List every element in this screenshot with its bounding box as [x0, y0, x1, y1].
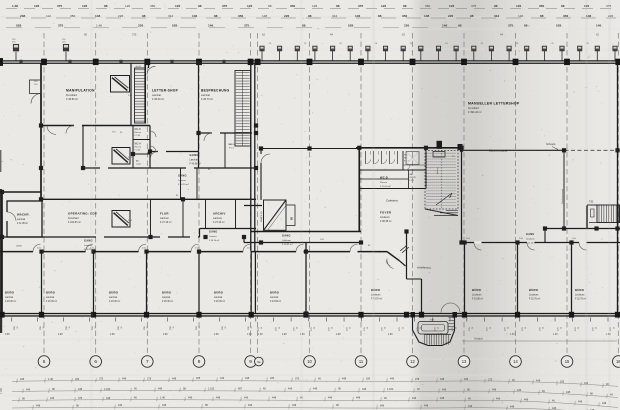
svg-text:448: 448 [36, 405, 41, 408]
svg-text:26: 26 [43, 326, 45, 328]
svg-text:Laminat: Laminat [109, 296, 118, 299]
svg-text:126: 126 [381, 4, 386, 8]
svg-text:446: 446 [578, 401, 583, 404]
svg-text:F 40.98 m²: F 40.98 m² [190, 163, 201, 166]
svg-text:Laminat: Laminat [178, 179, 186, 182]
svg-text:2.98: 2.98 [58, 334, 63, 336]
svg-text:446: 446 [50, 397, 55, 400]
svg-text:146: 146 [442, 24, 447, 28]
svg-text:F 222.84 m²: F 222.84 m² [68, 221, 81, 224]
svg-text:98: 98 [308, 14, 312, 18]
svg-text:185: 185 [270, 377, 275, 380]
svg-text:26: 26 [147, 326, 149, 328]
svg-text:26: 26 [507, 327, 509, 329]
svg-text:Laminat: Laminat [162, 296, 171, 299]
svg-text:2.98: 2.98 [110, 334, 115, 336]
svg-text:278: 278 [147, 377, 152, 380]
svg-text:MANUELLER LETTERSHOP: MANUELLER LETTERSHOP [468, 102, 520, 106]
svg-text:26: 26 [69, 326, 71, 328]
svg-text:26: 26 [332, 327, 334, 329]
svg-text:1.38: 1.38 [247, 334, 252, 336]
svg-text:98: 98 [458, 24, 462, 28]
svg-text:F 26.30 m²: F 26.30 m² [5, 300, 16, 303]
svg-text:98: 98 [336, 4, 340, 8]
svg-text:448: 448 [313, 388, 318, 391]
svg-text:Laminat: Laminat [201, 94, 210, 97]
svg-text:26: 26 [349, 327, 351, 329]
svg-text:9: 9 [249, 359, 252, 364]
svg-text:448: 448 [492, 389, 497, 392]
svg-text:446: 446 [188, 396, 193, 399]
svg-text:375: 375 [222, 4, 227, 8]
svg-text:WC-H: WC-H [135, 144, 142, 146]
svg-text:BÜRO: BÜRO [270, 290, 280, 295]
svg-text:FLUR: FLUR [160, 212, 169, 216]
svg-text:126: 126 [516, 4, 521, 8]
svg-text:F 18.16 m²: F 18.16 m² [209, 239, 219, 242]
svg-text:226: 226 [284, 14, 289, 18]
svg-text:446: 446 [244, 396, 249, 399]
svg-text:448: 448 [172, 377, 177, 380]
svg-text:375: 375 [295, 377, 300, 380]
svg-text:88: 88 [524, 24, 528, 28]
svg-text:26: 26 [314, 327, 316, 329]
svg-text:2.98: 2.98 [336, 334, 341, 336]
svg-text:Linoleum: Linoleum [575, 295, 584, 297]
svg-text:126: 126 [312, 4, 317, 8]
svg-text:226: 226 [138, 24, 143, 28]
svg-text:F 27.16 m²: F 27.16 m² [160, 221, 172, 224]
svg-text:F 15.26 m²: F 15.26 m² [526, 242, 536, 245]
svg-text:528: 528 [556, 24, 561, 28]
svg-text:26: 26 [596, 327, 598, 329]
svg-text:Kunstharz: Kunstharz [66, 94, 78, 97]
svg-text:448: 448 [162, 404, 167, 407]
svg-text:180/80: 180/80 [16, 246, 22, 248]
svg-text:Fliesen: Fliesen [135, 132, 141, 134]
svg-text:375: 375 [132, 33, 137, 37]
svg-text:98: 98 [494, 4, 498, 8]
svg-text:1.182: 1.182 [1, 388, 3, 394]
svg-text:GANG: GANG [282, 233, 291, 237]
svg-text:375: 375 [58, 24, 63, 28]
svg-text:Laminat: Laminat [209, 235, 217, 238]
svg-text:BESPRECHUNG: BESPRECHUNG [201, 89, 230, 93]
svg-text:F 28.00 m²: F 28.00 m² [152, 98, 164, 101]
svg-text:Laminat: Laminat [160, 217, 169, 220]
svg-text:26: 26 [578, 327, 580, 329]
svg-text:BÜRO: BÜRO [5, 290, 15, 295]
svg-text:446: 446 [122, 378, 127, 381]
svg-text:448: 448 [566, 391, 571, 394]
svg-text:Laminat: Laminat [270, 296, 279, 299]
svg-text:Laminat: Laminat [213, 217, 222, 220]
svg-text:26: 26 [173, 326, 175, 328]
svg-text:BÜRO: BÜRO [162, 290, 172, 295]
svg-text:1.38: 1.38 [258, 334, 263, 336]
svg-text:1.38: 1.38 [510, 334, 515, 336]
svg-text:F 16.91 m²: F 16.91 m² [282, 243, 293, 246]
svg-text:98: 98 [403, 4, 407, 8]
svg-text:148: 148 [262, 14, 267, 18]
svg-text:350: 350 [425, 4, 430, 8]
svg-text:356: 356 [70, 14, 75, 18]
svg-text:PUTZR.: PUTZR. [410, 177, 417, 179]
svg-text:2.98: 2.98 [214, 334, 219, 336]
svg-text:26x18: 26x18 [136, 66, 141, 68]
svg-text:26: 26 [420, 327, 422, 329]
svg-text:Vordach: Vordach [474, 338, 483, 341]
svg-text:312: 312 [494, 14, 499, 18]
svg-text:375: 375 [471, 4, 476, 8]
svg-text:448: 448 [106, 397, 111, 400]
svg-text:Laminat: Laminat [190, 159, 199, 162]
svg-text:448: 448 [440, 378, 445, 381]
svg-text:26: 26 [17, 326, 19, 328]
svg-text:98: 98 [198, 4, 202, 8]
svg-text:GANG: GANG [209, 231, 218, 234]
svg-text:BÜRO: BÜRO [472, 287, 482, 292]
svg-text:487: 487 [238, 387, 243, 390]
svg-text:146: 146 [596, 24, 601, 28]
svg-text:F 26.30 m²: F 26.30 m² [214, 300, 225, 303]
svg-text:F 28.73 m²: F 28.73 m² [201, 98, 213, 101]
svg-text:1.48: 1.48 [96, 24, 102, 28]
svg-text:F 26.30 m²: F 26.30 m² [46, 300, 57, 303]
svg-text:446: 446 [390, 378, 395, 381]
svg-text:98: 98 [104, 4, 108, 8]
svg-text:Laminat: Laminat [5, 296, 14, 299]
svg-text:Linoleum: Linoleum [472, 295, 481, 297]
svg-text:BÜRO: BÜRO [46, 290, 56, 295]
svg-text:350: 350 [290, 4, 295, 8]
svg-text:14: 14 [513, 359, 518, 364]
svg-text:1.38: 1.38 [553, 334, 558, 336]
svg-text:6: 6 [94, 359, 97, 364]
svg-text:Lager: Lager [136, 164, 141, 166]
svg-text:448: 448 [524, 398, 529, 401]
svg-text:238: 238 [20, 14, 25, 18]
svg-text:12: 12 [410, 359, 415, 364]
svg-text:F 2.45: F 2.45 [135, 135, 142, 137]
svg-text:185: 185 [75, 378, 80, 381]
svg-text:Linoleum: Linoleum [282, 240, 291, 242]
svg-text:278: 278 [415, 378, 420, 381]
svg-text:185: 185 [464, 378, 469, 381]
svg-text:448: 448 [342, 377, 347, 380]
svg-text:446: 446 [517, 389, 522, 392]
svg-text:112: 112 [46, 14, 51, 18]
svg-text:126: 126 [449, 4, 454, 8]
svg-text:Glastrennwand: Glastrennwand [561, 189, 564, 204]
svg-text:F 98.38 m²: F 98.38 m² [380, 220, 392, 223]
svg-text:F 11.96 m²: F 11.96 m² [17, 222, 28, 225]
svg-text:98: 98 [268, 4, 272, 8]
svg-text:GANG: GANG [526, 233, 535, 236]
svg-text:Laminat: Laminat [17, 218, 26, 221]
svg-text:185: 185 [560, 381, 565, 384]
svg-text:Flie.: Flie. [404, 158, 408, 160]
svg-text:F 10.20 m²: F 10.20 m² [178, 183, 189, 186]
svg-text:F 33.08 m²: F 33.08 m² [472, 298, 483, 301]
svg-text:448: 448 [440, 397, 445, 400]
svg-text:F 23.09 m²: F 23.09 m² [270, 300, 281, 303]
svg-text:26: 26 [296, 327, 298, 329]
svg-text:448: 448 [424, 405, 429, 408]
svg-text:375: 375 [244, 24, 249, 28]
svg-text:88: 88 [214, 14, 218, 18]
svg-text:26: 26 [225, 326, 227, 328]
svg-text:448: 448 [510, 405, 515, 408]
svg-text:2.98: 2.98 [282, 334, 287, 336]
svg-text:BÜRO: BÜRO [529, 287, 539, 292]
svg-text:WC-D: WC-D [135, 129, 142, 131]
svg-text:Kunstharz: Kunstharz [468, 107, 480, 110]
svg-text:Anlieferung: Anlieferung [417, 266, 431, 270]
svg-text:126: 126 [125, 4, 130, 8]
svg-text:226: 226 [118, 14, 123, 18]
svg-text:Linoleum: Linoleum [526, 239, 535, 241]
svg-text:528: 528 [348, 24, 353, 28]
svg-text:446: 446 [412, 397, 417, 400]
svg-text:446: 446 [288, 387, 293, 390]
svg-text:88: 88 [540, 14, 544, 18]
svg-text:26: 26 [525, 327, 527, 329]
svg-text:1.48: 1.48 [48, 378, 53, 381]
svg-text:13: 13 [462, 359, 467, 364]
svg-text:446: 446 [158, 388, 163, 391]
svg-text:448: 448 [602, 402, 607, 405]
svg-text:Fliesen: Fliesen [135, 147, 141, 149]
svg-text:185: 185 [366, 378, 371, 381]
svg-text:26: 26 [385, 327, 387, 329]
svg-text:9a: 9a [257, 360, 261, 364]
svg-text:375: 375 [358, 4, 363, 8]
svg-text:846: 846 [380, 404, 385, 407]
svg-text:448: 448 [272, 396, 277, 399]
svg-text:146: 146 [518, 14, 523, 18]
svg-text:26: 26 [543, 327, 545, 329]
svg-text:375: 375 [78, 397, 83, 400]
svg-text:2.98: 2.98 [163, 334, 168, 336]
svg-text:GANG: GANG [190, 153, 199, 157]
svg-text:1.98: 1.98 [438, 334, 443, 336]
svg-text:7: 7 [146, 359, 149, 364]
svg-text:446: 446 [362, 388, 367, 391]
svg-text:26: 26 [199, 326, 201, 328]
svg-text:2.98: 2.98 [388, 334, 393, 336]
svg-text:Kunstharz: Kunstharz [68, 217, 80, 220]
svg-text:26: 26 [261, 327, 263, 329]
svg-text:Fliesen: Fliesen [380, 182, 388, 184]
svg-text:375: 375 [57, 4, 62, 8]
svg-text:F 26.30 m²: F 26.30 m² [109, 300, 120, 303]
svg-text:BÜRO: BÜRO [575, 287, 585, 292]
svg-text:T30: T30 [589, 200, 594, 203]
svg-text:446: 446 [552, 407, 557, 410]
svg-text:LETTER-SHOP: LETTER-SHOP [152, 89, 179, 93]
svg-text:5: 5 [43, 359, 46, 364]
svg-text:446: 446 [118, 404, 123, 407]
svg-text:RAMPE 6%: RAMPE 6% [260, 211, 263, 222]
svg-text:448: 448 [216, 396, 221, 399]
svg-text:Linoleum: Linoleum [380, 216, 390, 219]
svg-text:F 27.16 m²: F 27.16 m² [213, 221, 225, 224]
svg-text:F 26.30 m²: F 26.30 m² [162, 300, 173, 303]
svg-text:448: 448 [356, 397, 361, 400]
svg-text:98: 98 [561, 4, 565, 8]
svg-text:F 38.80 m²: F 38.80 m² [66, 98, 78, 101]
svg-text:16: 16 [616, 359, 620, 364]
svg-text:1.48: 1.48 [12, 4, 18, 8]
svg-text:Aufzug: Aufzug [436, 167, 439, 174]
svg-text:Linoleum: Linoleum [529, 295, 538, 297]
svg-text:375: 375 [99, 378, 104, 381]
svg-text:350: 350 [539, 4, 544, 8]
svg-text:312: 312 [332, 14, 337, 18]
svg-text:8: 8 [198, 359, 201, 364]
svg-text:11: 11 [359, 359, 364, 364]
svg-text:26: 26 [438, 327, 440, 329]
svg-text:98: 98 [470, 14, 474, 18]
svg-text:448: 448 [292, 404, 297, 407]
svg-text:26: 26 [251, 326, 253, 328]
svg-text:10: 10 [307, 359, 312, 364]
svg-text:146: 146 [208, 24, 213, 28]
svg-text:146: 146 [355, 14, 360, 18]
svg-text:F 32.76 m²: F 32.76 m² [575, 298, 586, 301]
svg-text:Laminat: Laminat [46, 296, 55, 299]
svg-text:446: 446 [496, 398, 501, 401]
svg-text:448: 448 [78, 388, 83, 391]
svg-text:226: 226 [404, 24, 409, 28]
svg-text:26: 26 [367, 327, 369, 329]
svg-text:356: 356 [563, 14, 568, 18]
svg-text:448: 448 [20, 378, 25, 381]
svg-text:148: 148 [424, 14, 429, 18]
svg-text:Cafeteria: Cafeteria [386, 199, 398, 203]
svg-text:375: 375 [508, 24, 513, 28]
svg-text:F 32.76 m²: F 32.76 m² [529, 298, 540, 301]
svg-text:26: 26 [472, 327, 474, 329]
svg-text:BÜRO: BÜRO [109, 290, 119, 295]
svg-text:26: 26 [402, 327, 404, 329]
svg-text:15: 15 [565, 359, 570, 364]
svg-text:446: 446 [220, 377, 225, 380]
svg-text:88: 88 [378, 14, 382, 18]
svg-text:448: 448 [536, 380, 541, 383]
svg-text:Glastrennwand: Glastrennwand [489, 149, 508, 152]
svg-text:126: 126 [82, 4, 87, 8]
svg-text:26: 26 [490, 327, 492, 329]
svg-text:26: 26 [95, 326, 97, 328]
svg-text:2.98: 2.98 [5, 334, 10, 336]
svg-text:846: 846 [248, 404, 253, 407]
svg-text:F 494.42 m²: F 494.42 m² [468, 111, 482, 114]
svg-text:226: 226 [448, 14, 453, 18]
svg-text:126: 126 [247, 4, 252, 8]
svg-text:446: 446 [26, 388, 31, 391]
svg-text:1.182: 1.182 [104, 388, 111, 391]
svg-text:26: 26 [121, 326, 123, 328]
svg-text:WC: WC [404, 155, 408, 157]
svg-text:Laminat: Laminat [214, 296, 223, 299]
svg-text:185: 185 [196, 377, 201, 380]
svg-text:BÜRO: BÜRO [214, 290, 224, 295]
svg-text:F 2.45: F 2.45 [135, 150, 142, 152]
svg-text:350: 350 [150, 4, 155, 8]
svg-text:Laminat: Laminat [152, 94, 161, 97]
svg-text:1.182: 1.182 [208, 387, 215, 390]
svg-text:26: 26 [279, 327, 281, 329]
svg-text:146: 146 [192, 14, 197, 18]
svg-text:1.48: 1.48 [160, 397, 165, 400]
svg-text:126: 126 [34, 4, 39, 8]
svg-text:148: 148 [95, 14, 100, 18]
svg-text:26: 26 [560, 327, 562, 329]
svg-text:1.182: 1.182 [387, 388, 394, 391]
svg-text:126: 126 [175, 4, 180, 8]
svg-text:375: 375 [488, 378, 493, 381]
svg-text:446: 446 [328, 397, 333, 400]
svg-text:26: 26 [613, 327, 615, 329]
svg-text:356: 356 [238, 14, 243, 18]
svg-text:GANG: GANG [178, 174, 187, 178]
svg-text:Schwelle: Schwelle [546, 143, 556, 146]
svg-text:F 2.3: F 2.3 [410, 180, 414, 182]
svg-text:98: 98 [142, 14, 146, 18]
svg-text:446: 446 [468, 405, 473, 408]
svg-text:26: 26 [455, 327, 457, 329]
svg-text:WC-D: WC-D [380, 176, 388, 180]
svg-text:448: 448 [245, 377, 250, 380]
svg-text:312: 312 [168, 14, 173, 18]
svg-text:356: 356 [402, 14, 407, 18]
svg-text:528: 528 [16, 24, 21, 28]
svg-text:446: 446 [442, 388, 447, 391]
svg-text:ARCHIV: ARCHIV [213, 212, 226, 216]
svg-text:528: 528 [172, 24, 177, 28]
svg-text:WACHR.: WACHR. [17, 213, 30, 217]
svg-text:FOYER: FOYER [380, 211, 392, 215]
